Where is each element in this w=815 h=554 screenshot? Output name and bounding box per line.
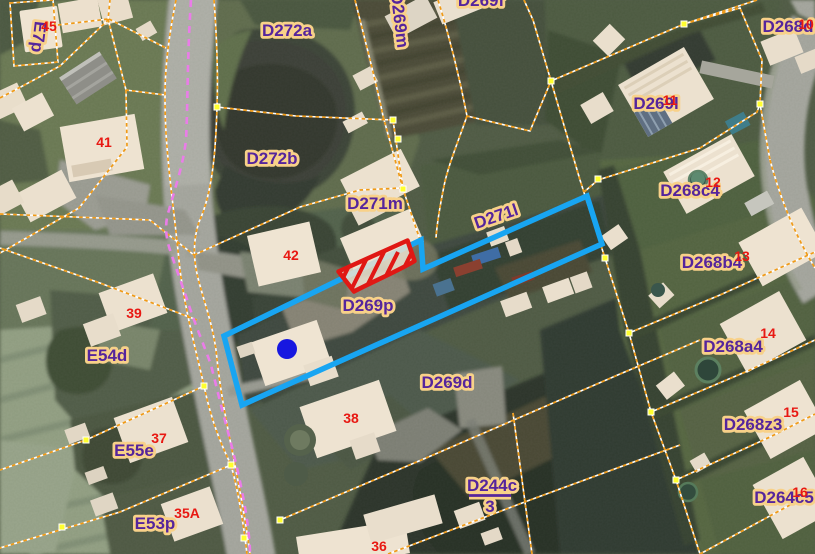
svg-text:D271m: D271m bbox=[347, 194, 403, 213]
svg-text:10: 10 bbox=[798, 16, 814, 32]
svg-text:3: 3 bbox=[485, 497, 494, 516]
svg-text:D272a: D272a bbox=[262, 21, 313, 40]
svg-text:D268z3: D268z3 bbox=[724, 415, 783, 434]
svg-text:37: 37 bbox=[151, 430, 167, 446]
svg-text:39: 39 bbox=[126, 305, 142, 321]
svg-text:14: 14 bbox=[760, 325, 776, 341]
svg-text:E53p: E53p bbox=[135, 514, 176, 533]
svg-text:35A: 35A bbox=[174, 505, 200, 521]
svg-text:D272b: D272b bbox=[246, 149, 297, 168]
svg-text:38: 38 bbox=[343, 410, 359, 426]
svg-text:13: 13 bbox=[734, 248, 750, 264]
svg-text:11: 11 bbox=[663, 92, 678, 108]
svg-text:D269d: D269d bbox=[421, 373, 472, 392]
svg-text:15: 15 bbox=[783, 404, 799, 420]
svg-text:41: 41 bbox=[96, 134, 112, 150]
svg-text:36: 36 bbox=[371, 538, 387, 554]
svg-text:E55e: E55e bbox=[114, 441, 154, 460]
svg-text:12: 12 bbox=[705, 174, 721, 190]
svg-text:D269f: D269f bbox=[458, 0, 505, 10]
svg-text:42: 42 bbox=[283, 247, 299, 263]
svg-text:D269p: D269p bbox=[342, 296, 393, 315]
svg-text:16: 16 bbox=[792, 484, 808, 500]
svg-text:E54d: E54d bbox=[87, 346, 128, 365]
svg-text:D268a4: D268a4 bbox=[703, 337, 763, 356]
svg-text:45: 45 bbox=[41, 18, 57, 34]
